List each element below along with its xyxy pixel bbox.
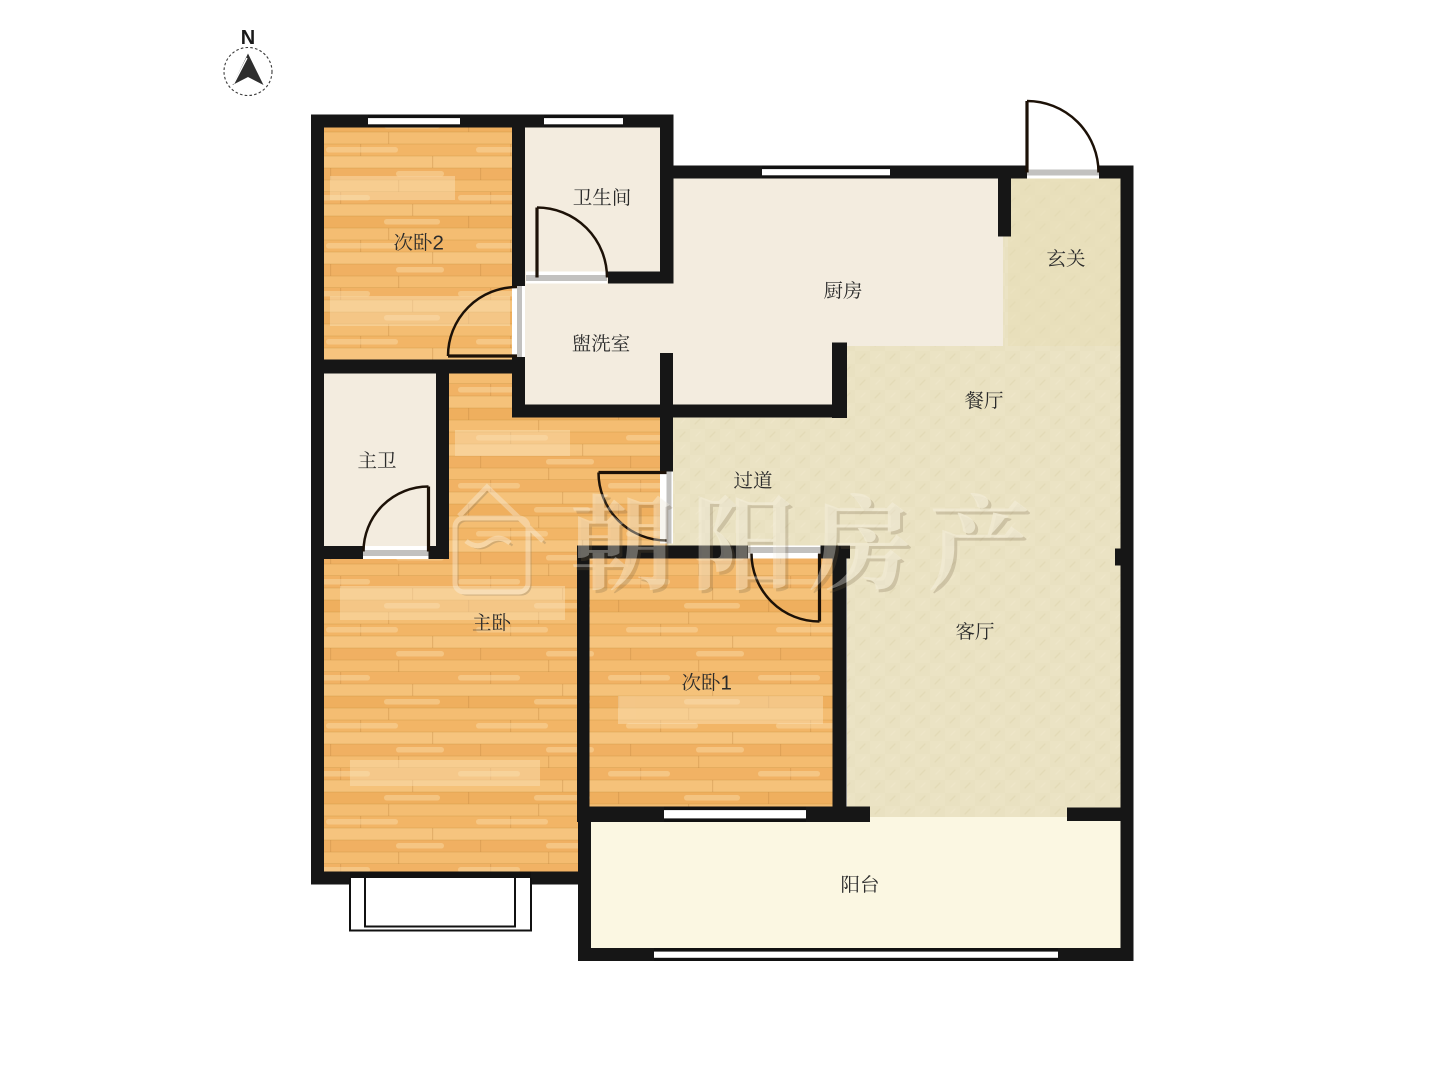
svg-text:1: 1	[721, 671, 732, 694]
svg-text:N: N	[241, 27, 255, 49]
svg-text:2: 2	[433, 231, 444, 254]
